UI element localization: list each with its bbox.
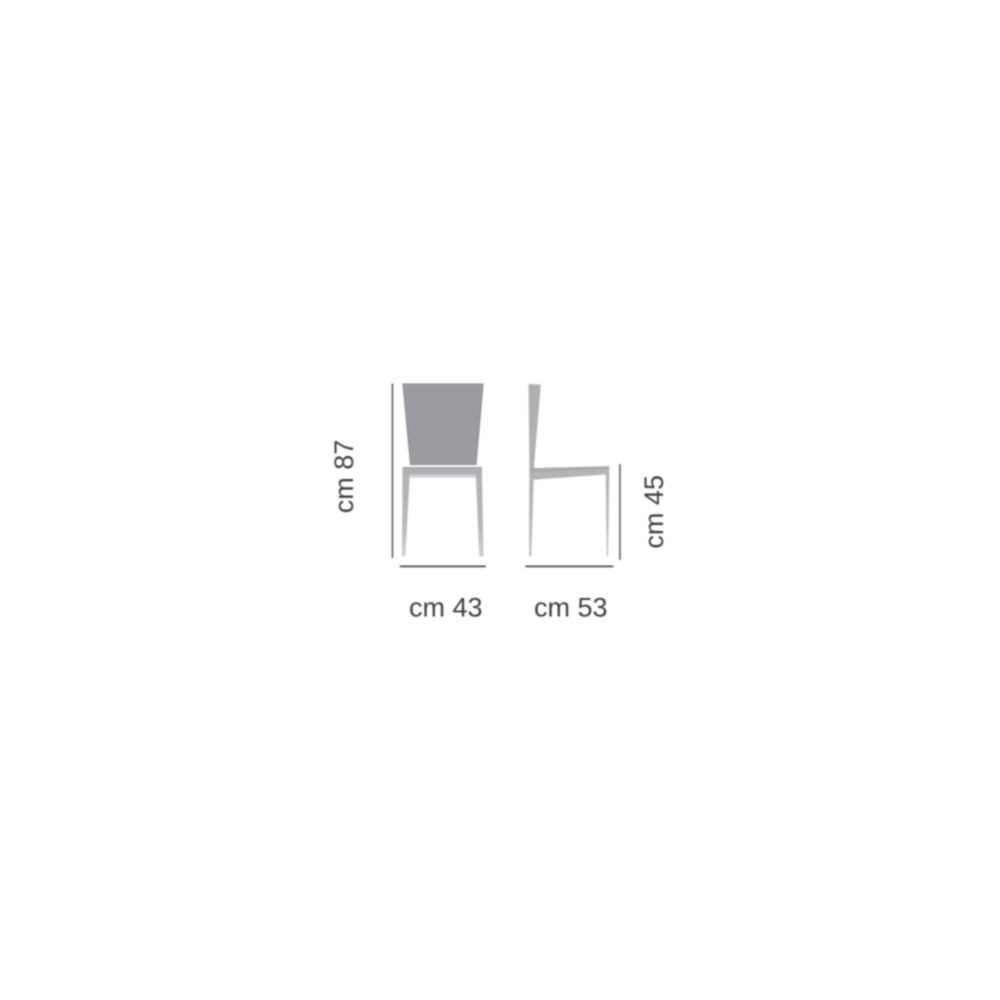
svg-text:cm 53: cm 53 <box>534 593 608 623</box>
svg-text:cm 87: cm 87 <box>329 440 359 514</box>
svg-text:cm 45: cm 45 <box>639 475 669 549</box>
svg-text:cm 43: cm 43 <box>409 593 483 623</box>
